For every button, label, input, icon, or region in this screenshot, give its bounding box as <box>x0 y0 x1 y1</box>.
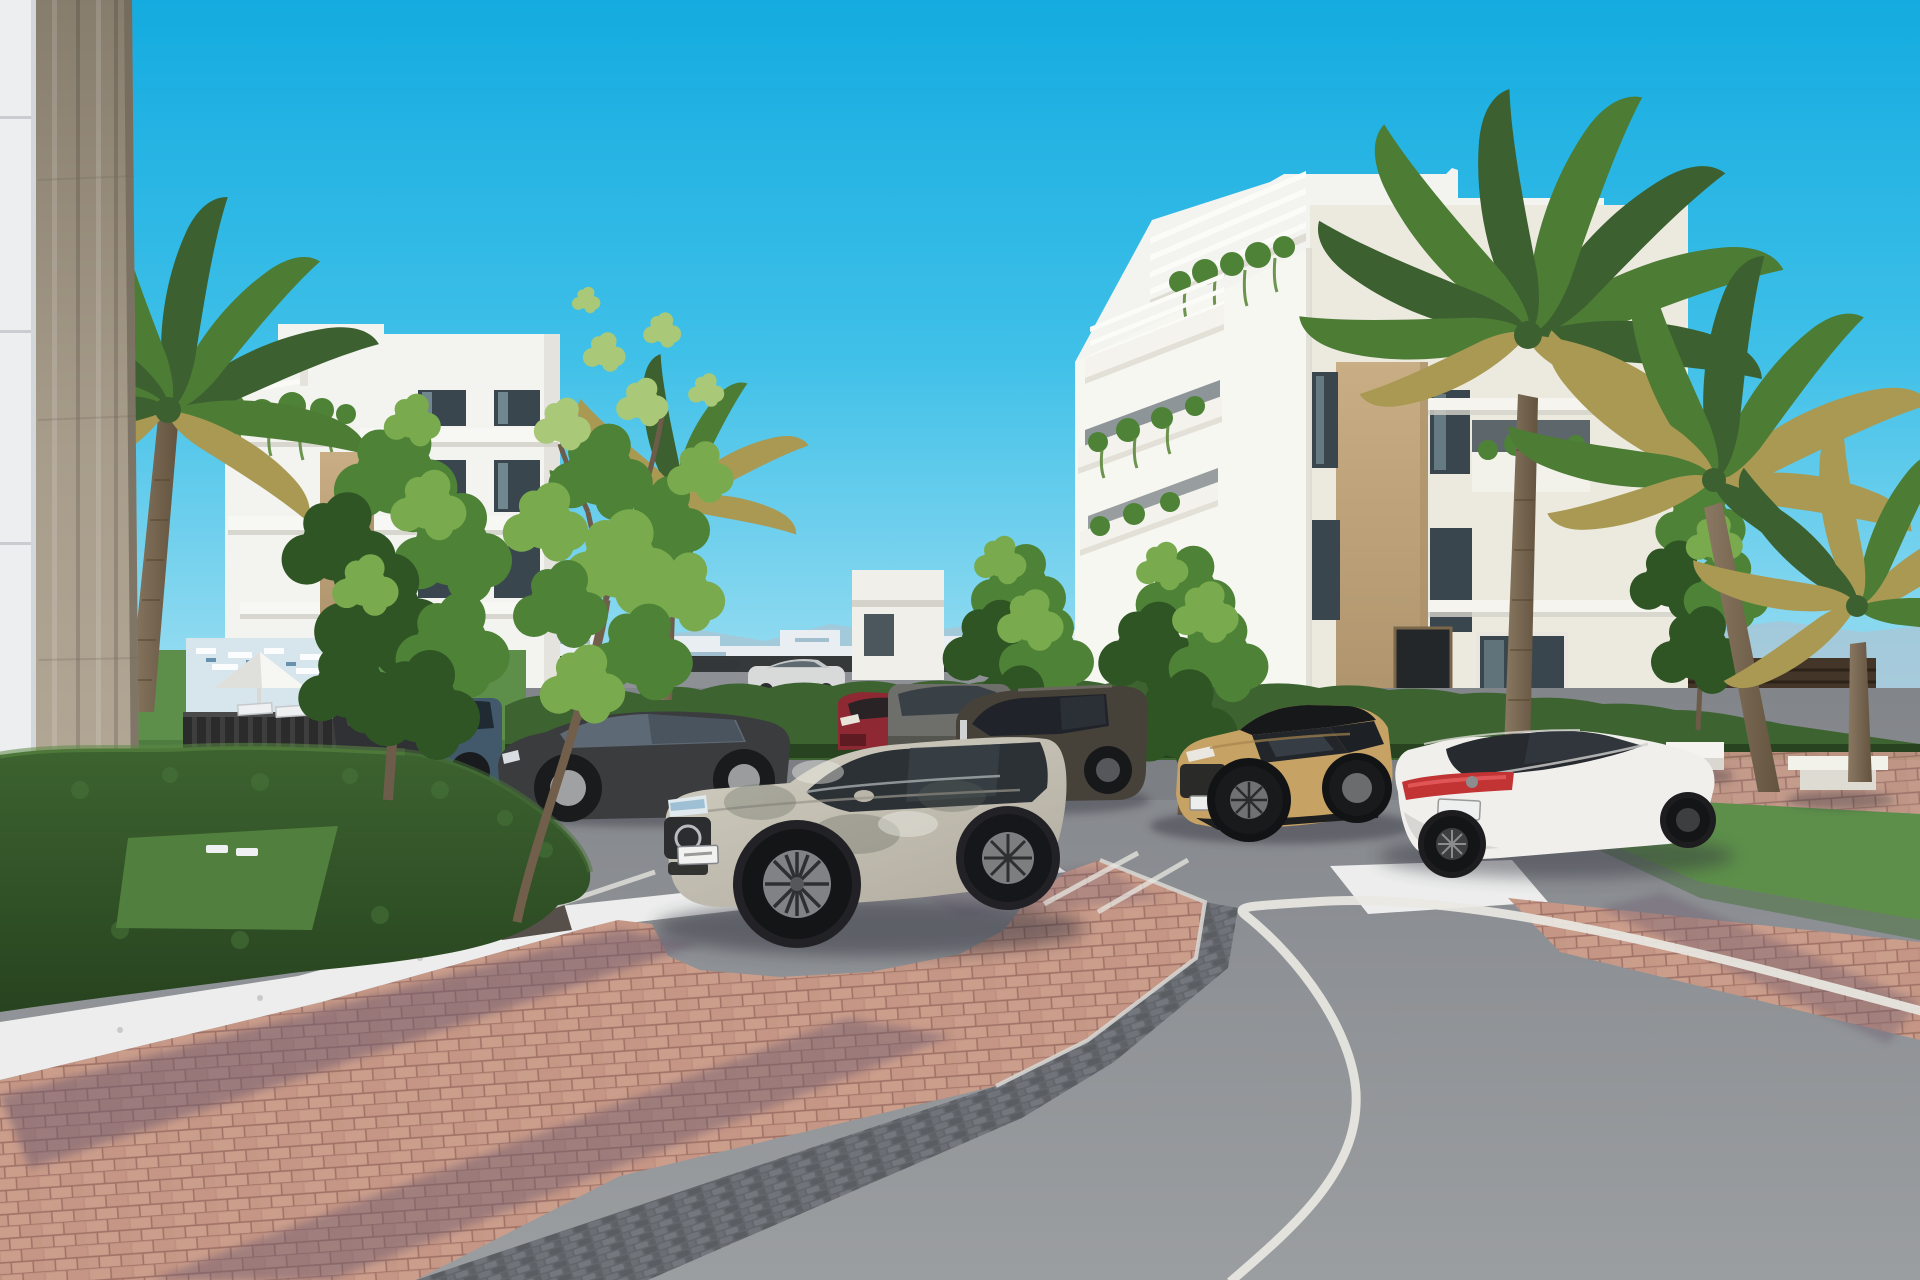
background-building-fragment <box>852 570 944 680</box>
hedge-inner-lawn <box>116 826 338 930</box>
architectural-render <box>0 0 1920 1280</box>
white-mercedes-sedan <box>1378 730 1734 878</box>
render-canvas <box>0 0 1920 1280</box>
